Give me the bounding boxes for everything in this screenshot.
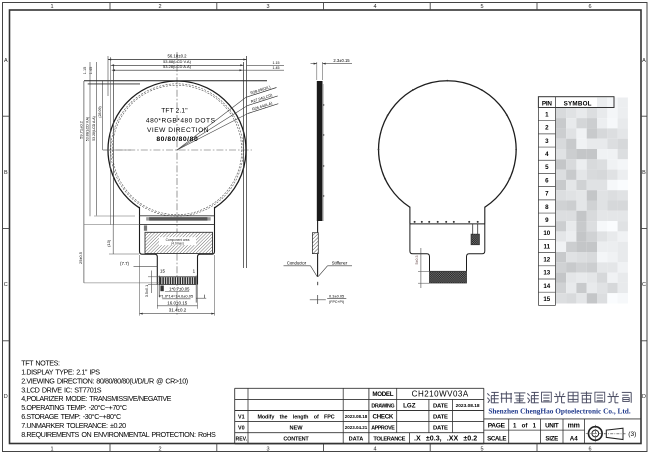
svg-text:TOLERANCE: TOLERANCE bbox=[373, 437, 405, 443]
svg-text:APPROVE: APPROVE bbox=[371, 425, 395, 431]
svg-text:TFT 2.1": TFT 2.1" bbox=[161, 107, 188, 114]
svg-text:SYMBOL: SYMBOL bbox=[564, 100, 592, 107]
svg-text:LGZ: LGZ bbox=[403, 402, 416, 409]
svg-text:4: 4 bbox=[545, 151, 549, 158]
svg-text:5.OPERATING TEMP: -20°C~+70°C: 5.OPERATING TEMP: -20°C~+70°C bbox=[21, 403, 127, 412]
svg-text:9: 9 bbox=[545, 217, 549, 224]
svg-text:59.71±0.2: 59.71±0.2 bbox=[78, 120, 83, 139]
svg-text:D: D bbox=[4, 394, 8, 400]
svg-text:480*RGB*480 DOTS: 480*RGB*480 DOTS bbox=[146, 117, 216, 124]
svg-text:7.UNMARKER TOLERANCE: ±0.20: 7.UNMARKER TOLERANCE: ±0.20 bbox=[21, 421, 126, 430]
svg-text:2: 2 bbox=[158, 447, 161, 453]
svg-text:4: 4 bbox=[373, 447, 376, 453]
svg-text:8: 8 bbox=[545, 204, 549, 211]
svg-text:7: 7 bbox=[545, 191, 549, 198]
svg-text:UNIT: UNIT bbox=[545, 422, 559, 429]
svg-text:(7.7): (7.7) bbox=[120, 261, 130, 266]
svg-text:8.REQUIREMENTS ON ENVIRONMENTA: 8.REQUIREMENTS ON ENVIRONMENTAL PROTECTI… bbox=[21, 430, 216, 439]
svg-text:Stiffener: Stiffener bbox=[332, 261, 348, 266]
svg-text:15: 15 bbox=[543, 296, 550, 303]
svg-text:6: 6 bbox=[545, 177, 549, 184]
svg-text:DATA: DATA bbox=[349, 437, 364, 443]
svg-text:3.5±0.1: 3.5±0.1 bbox=[145, 285, 149, 297]
svg-text:13: 13 bbox=[543, 270, 550, 277]
svg-text:V1: V1 bbox=[238, 414, 245, 420]
svg-text:2.3±0.15: 2.3±0.15 bbox=[333, 58, 350, 63]
svg-text:B: B bbox=[4, 170, 8, 176]
svg-text:1.45: 1.45 bbox=[273, 66, 280, 70]
svg-text:A4: A4 bbox=[570, 435, 578, 442]
svg-text:NEW: NEW bbox=[289, 425, 303, 431]
svg-text:(3): (3) bbox=[628, 431, 636, 438]
svg-text:(FPC+PI): (FPC+PI) bbox=[329, 300, 344, 304]
svg-text:PAGE: PAGE bbox=[488, 422, 506, 429]
svg-text:(4.0max): (4.0max) bbox=[171, 241, 184, 245]
svg-text:1: 1 bbox=[545, 111, 549, 118]
svg-text:CONTENT: CONTENT bbox=[283, 437, 309, 443]
svg-text:1.15: 1.15 bbox=[83, 67, 87, 74]
svg-text:53.28(LCD A.A): 53.28(LCD A.A) bbox=[163, 64, 192, 69]
svg-text:16.0±0.15: 16.0±0.15 bbox=[167, 300, 187, 305]
svg-text:CHECK: CHECK bbox=[373, 413, 394, 420]
svg-text:6: 6 bbox=[588, 447, 591, 453]
svg-text:0.3±0.05: 0.3±0.05 bbox=[329, 293, 344, 298]
svg-text:1: 1 bbox=[50, 447, 53, 453]
svg-text:2.VIEWING DIRECTION: 80/80/80: 2.VIEWING DIRECTION: 80/80/80/80(U/D/L/R… bbox=[21, 376, 187, 385]
svg-text:3: 3 bbox=[266, 447, 269, 453]
svg-text:mm: mm bbox=[568, 422, 580, 429]
svg-text:5±0.3: 5±0.3 bbox=[415, 256, 419, 265]
svg-text:3: 3 bbox=[266, 4, 269, 10]
svg-text:80/80/80/80: 80/80/80/80 bbox=[156, 136, 198, 143]
svg-text:(13): (13) bbox=[106, 239, 111, 247]
svg-text:2: 2 bbox=[545, 125, 549, 132]
svg-text:DATE: DATE bbox=[433, 425, 448, 431]
svg-text:10: 10 bbox=[543, 230, 550, 237]
svg-text:11: 11 bbox=[544, 243, 551, 250]
svg-text:2023.08.18: 2023.08.18 bbox=[456, 403, 480, 409]
svg-text:CH210WV03A: CH210WV03A bbox=[412, 390, 469, 399]
svg-text:DRAWING: DRAWING bbox=[371, 403, 394, 409]
svg-text:6.STORAGE TEMP: -30°C~+80°C: 6.STORAGE TEMP: -30°C~+80°C bbox=[21, 412, 121, 421]
svg-text:(28.09): (28.09) bbox=[98, 106, 102, 117]
svg-text:14: 14 bbox=[543, 283, 550, 290]
svg-text:25±0.5: 25±0.5 bbox=[78, 252, 83, 264]
svg-text:VIEW DIRECTION: VIEW DIRECTION bbox=[147, 127, 209, 134]
svg-text:V0: V0 bbox=[238, 425, 245, 431]
svg-text:3.LCD DRIVE IC: ST7701S: 3.LCD DRIVE IC: ST7701S bbox=[21, 385, 101, 394]
svg-text:4: 4 bbox=[373, 4, 376, 10]
svg-text:5: 5 bbox=[480, 4, 483, 10]
svg-text:D: D bbox=[642, 394, 646, 400]
svg-text:B: B bbox=[642, 170, 646, 176]
svg-text:6: 6 bbox=[588, 4, 591, 10]
svg-text:1.45: 1.45 bbox=[89, 67, 93, 74]
svg-text:2023.08.18: 2023.08.18 bbox=[345, 414, 368, 419]
svg-text:4,POLARIZER MODE: TRANSMISSIV: 4,POLARIZER MODE: TRANSMISSIVE/NEGATIVE bbox=[21, 394, 171, 403]
svg-text:PIN: PIN bbox=[542, 100, 553, 107]
svg-text:TFT NOTES:: TFT NOTES: bbox=[21, 359, 60, 368]
svg-text:REV.: REV. bbox=[235, 437, 247, 443]
svg-text:1.DISPLAY TYPE: 2.1" IPS: 1.DISPLAY TYPE: 2.1" IPS bbox=[21, 368, 100, 377]
svg-text:.X ±0.3, .XX ±0.2: .X ±0.3, .XX ±0.2 bbox=[414, 435, 477, 443]
svg-text:SCALE: SCALE bbox=[487, 435, 506, 442]
svg-text:Shenzhen ChengHao Optoelectron: Shenzhen ChengHao Optoelectronic Co., Lt… bbox=[488, 407, 631, 416]
svg-text:C: C bbox=[642, 282, 646, 288]
svg-text:5: 5 bbox=[545, 164, 549, 171]
svg-text:P1.0*14=14.0±0.05: P1.0*14=14.0±0.05 bbox=[159, 294, 194, 299]
svg-text:SIZE: SIZE bbox=[545, 435, 558, 442]
svg-text:53.88(LCD V.A): 53.88(LCD V.A) bbox=[86, 117, 90, 141]
svg-text:53.28(LCD A.A): 53.28(LCD A.A) bbox=[92, 116, 96, 141]
svg-text:12: 12 bbox=[543, 257, 550, 264]
svg-text:DATE: DATE bbox=[433, 403, 448, 409]
svg-text:MODEL: MODEL bbox=[372, 391, 393, 398]
svg-text:A: A bbox=[642, 58, 646, 64]
svg-text:15: 15 bbox=[160, 269, 165, 274]
svg-text:5: 5 bbox=[480, 447, 483, 453]
svg-text:A: A bbox=[4, 58, 8, 64]
svg-text:2023.04.21: 2023.04.21 bbox=[345, 425, 368, 430]
svg-text:1*0.7±0.05: 1*0.7±0.05 bbox=[169, 286, 190, 291]
svg-text:Modify the length of FPC: Modify the length of FPC bbox=[257, 414, 334, 420]
svg-text:1.15: 1.15 bbox=[273, 61, 280, 65]
svg-text:56.18±0.2: 56.18±0.2 bbox=[167, 53, 187, 58]
svg-text:1: 1 bbox=[50, 4, 53, 10]
svg-text:Conductor: Conductor bbox=[287, 261, 307, 266]
svg-text:1 of 1: 1 of 1 bbox=[513, 422, 537, 429]
svg-text:3: 3 bbox=[545, 138, 549, 145]
svg-text:31.4±0.2: 31.4±0.2 bbox=[169, 308, 187, 313]
svg-text:2: 2 bbox=[158, 4, 161, 10]
svg-text:C: C bbox=[4, 282, 8, 288]
svg-text:DATE: DATE bbox=[433, 414, 448, 420]
